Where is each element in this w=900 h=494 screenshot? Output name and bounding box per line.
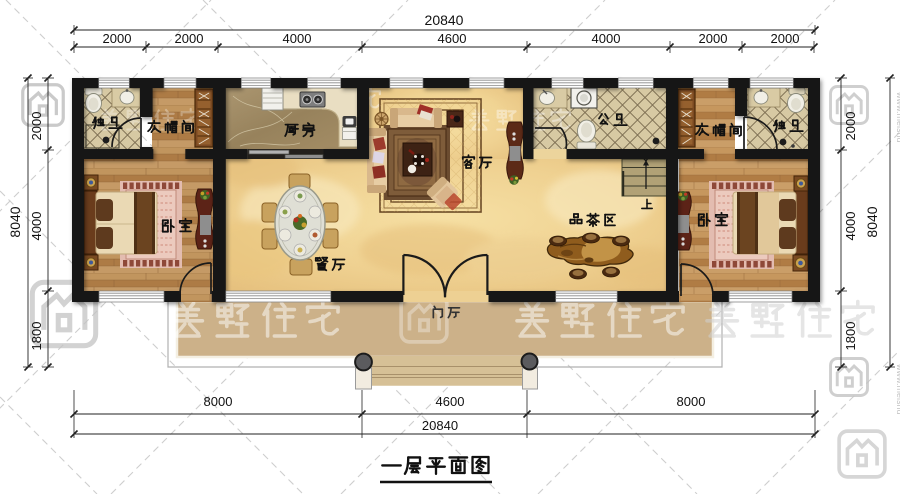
svg-text:4000: 4000 [592, 31, 621, 46]
svg-text:4600: 4600 [438, 31, 467, 46]
svg-text:8040: 8040 [7, 206, 23, 237]
svg-text:1800: 1800 [29, 322, 44, 351]
svg-text:20840: 20840 [425, 12, 464, 28]
svg-text:1800: 1800 [843, 322, 858, 351]
svg-text:4000: 4000 [29, 212, 44, 241]
svg-text:20840: 20840 [422, 418, 458, 433]
svg-text:2000: 2000 [103, 31, 132, 46]
svg-text:2000: 2000 [843, 112, 858, 141]
svg-text:4000: 4000 [283, 31, 312, 46]
svg-text:8040: 8040 [864, 206, 880, 237]
svg-text:2000: 2000 [699, 31, 728, 46]
svg-text:4000: 4000 [843, 212, 858, 241]
svg-text:8000: 8000 [677, 394, 706, 409]
svg-text:www.meishu: www.meishu [895, 363, 900, 415]
svg-text:4600: 4600 [436, 394, 465, 409]
svg-text:2000: 2000 [771, 31, 800, 46]
svg-text:2000: 2000 [175, 31, 204, 46]
svg-text:www.meishu: www.meishu [895, 91, 900, 143]
svg-text:2000: 2000 [29, 112, 44, 141]
svg-text:8000: 8000 [204, 394, 233, 409]
